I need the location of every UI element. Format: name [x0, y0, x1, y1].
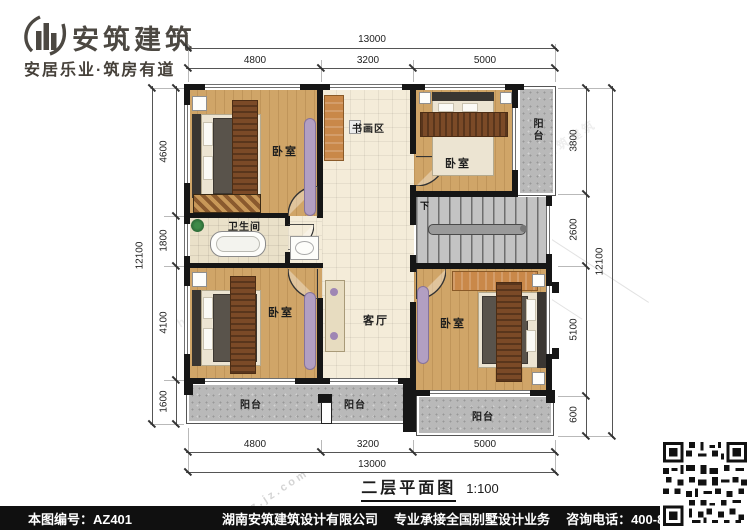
window — [546, 206, 552, 254]
wall — [317, 298, 323, 384]
dim-bottom-seg1: 4800 — [233, 439, 277, 450]
extension-line — [164, 266, 184, 267]
service-text: 专业承接全国别墅设计业务 — [394, 509, 550, 528]
desk — [452, 271, 538, 291]
decor — [330, 288, 338, 296]
dimension-line-top-segments — [186, 68, 557, 69]
drawing-number: 本图编号：AZ401 — [28, 509, 132, 528]
sheet-title: 二层平面图 — [361, 474, 456, 502]
art-desk — [324, 95, 344, 161]
bed-headboard — [192, 114, 201, 198]
window — [546, 286, 552, 354]
pillow — [462, 103, 478, 112]
qr-code — [660, 438, 750, 530]
window — [512, 108, 518, 170]
balcony-bottom-left — [186, 382, 406, 424]
wall-pilaster — [552, 282, 559, 293]
dim-right-total: 12100 — [595, 240, 606, 284]
window — [205, 84, 300, 90]
room-label-bedroom-tl: 卧室 — [272, 143, 298, 159]
extension-line — [558, 266, 586, 267]
logo-icon — [20, 10, 70, 58]
extension-line — [164, 216, 184, 217]
dim-right-seg2: 2600 — [569, 208, 580, 252]
room-label-bedroom-bl: 卧室 — [268, 304, 294, 320]
room-label-bathroom: 卫生间 — [228, 218, 261, 233]
pillow — [438, 103, 454, 112]
nightstand — [532, 372, 545, 385]
flue-box — [321, 402, 332, 424]
sink — [295, 241, 314, 255]
nightstand — [419, 92, 431, 104]
plant — [191, 219, 204, 232]
dim-bottom-seg2: 3200 — [346, 439, 390, 450]
nightstand — [192, 272, 207, 287]
window — [430, 390, 530, 396]
bed-headboard — [432, 92, 494, 101]
room-label-bedroom-tr: 卧室 — [445, 155, 471, 171]
sheet-scale: 1:100 — [466, 481, 499, 496]
dim-top-seg3: 5000 — [463, 55, 507, 66]
dim-left-seg4: 1600 — [159, 380, 170, 424]
wall — [184, 382, 193, 395]
room-label-balcony-br: 阳台 — [472, 408, 494, 423]
dimension-line-top-total — [186, 48, 557, 49]
dimension-line-bottom-segments — [186, 452, 557, 453]
room-label-balcony-right: 阳台 — [529, 118, 544, 142]
rug — [420, 112, 508, 137]
window — [184, 286, 190, 354]
floor-plan-sheet: 安筑建筑 安居乐业·筑房有道 安筑建筑 hnaz.jz.com 安筑建筑 hna… — [0, 0, 750, 530]
dimension-line-left-segments — [176, 86, 177, 426]
wall — [403, 378, 416, 432]
wardrobe — [304, 292, 316, 370]
dimension-line-right-segments — [586, 86, 587, 438]
pillow — [203, 297, 213, 319]
pillow — [203, 156, 213, 180]
room-label-art-area: 书画区 — [352, 120, 385, 135]
extension-line — [555, 440, 556, 474]
decor — [330, 332, 338, 340]
footer-bar: 本图编号：AZ401 湖南安筑建筑设计有限公司 专业承接全国别墅设计业务 咨询电… — [0, 506, 750, 530]
pillow — [526, 299, 536, 321]
rug — [496, 282, 522, 382]
dim-right-seg4: 600 — [569, 393, 580, 437]
dim-top-total: 13000 — [350, 34, 394, 45]
window — [330, 84, 402, 90]
dim-right-seg3: 5100 — [569, 308, 580, 352]
sheet-title-row: 二层平面图 1:100 — [300, 474, 560, 502]
pillow — [203, 122, 213, 146]
room-label-bedroom-br: 卧室 — [440, 315, 466, 331]
dim-left-seg1: 4600 — [159, 130, 170, 174]
dim-left-seg2: 1800 — [159, 219, 170, 263]
nightstand — [532, 274, 545, 287]
bed-headboard — [537, 292, 546, 368]
bathtub-basin — [216, 236, 260, 252]
pillow — [203, 328, 213, 350]
room-label-balcony-bl: 阳台 — [240, 396, 262, 411]
dim-top-seg1: 4800 — [233, 55, 277, 66]
dim-left-total: 12100 — [135, 234, 146, 278]
wardrobe — [417, 286, 429, 364]
wardrobe — [304, 118, 316, 216]
dimension-line-bottom-total — [186, 472, 557, 473]
wall-pilaster — [552, 348, 559, 359]
wall — [410, 84, 416, 154]
nightstand — [500, 92, 512, 104]
wall — [546, 390, 555, 403]
rug — [230, 276, 256, 374]
room-label-living: 客厅 — [363, 312, 389, 328]
stairs-down-label: 下 — [420, 199, 429, 212]
window — [330, 378, 398, 384]
window — [205, 378, 295, 384]
extension-line — [558, 194, 586, 195]
dim-left-seg3: 4100 — [159, 301, 170, 345]
wardrobe — [193, 194, 261, 213]
window — [425, 84, 505, 90]
extension-line — [413, 60, 414, 82]
dim-bottom-total: 13000 — [350, 459, 394, 470]
dimension-line-left-total — [152, 86, 153, 426]
extension-line — [321, 60, 322, 82]
window — [184, 224, 190, 256]
brand-tagline: 安居乐业·筑房有道 — [24, 56, 175, 80]
room-label-balcony-bm: 阳台 — [344, 396, 366, 411]
wall — [184, 263, 323, 268]
window — [184, 105, 190, 183]
logo-text: 安筑建筑 — [72, 18, 196, 57]
company-name: 湖南安筑建筑设计有限公司 — [222, 509, 378, 528]
dim-top-seg2: 3200 — [346, 55, 390, 66]
dimension-line-right-total — [612, 86, 613, 438]
dim-right-seg1: 3800 — [569, 119, 580, 163]
pillow — [526, 330, 536, 352]
nightstand — [192, 96, 207, 111]
stair-handrail-knob — [520, 225, 527, 232]
dim-bottom-seg3: 5000 — [463, 439, 507, 450]
wall — [410, 191, 518, 197]
stair-handrail — [428, 224, 526, 235]
bed-headboard — [192, 290, 201, 366]
